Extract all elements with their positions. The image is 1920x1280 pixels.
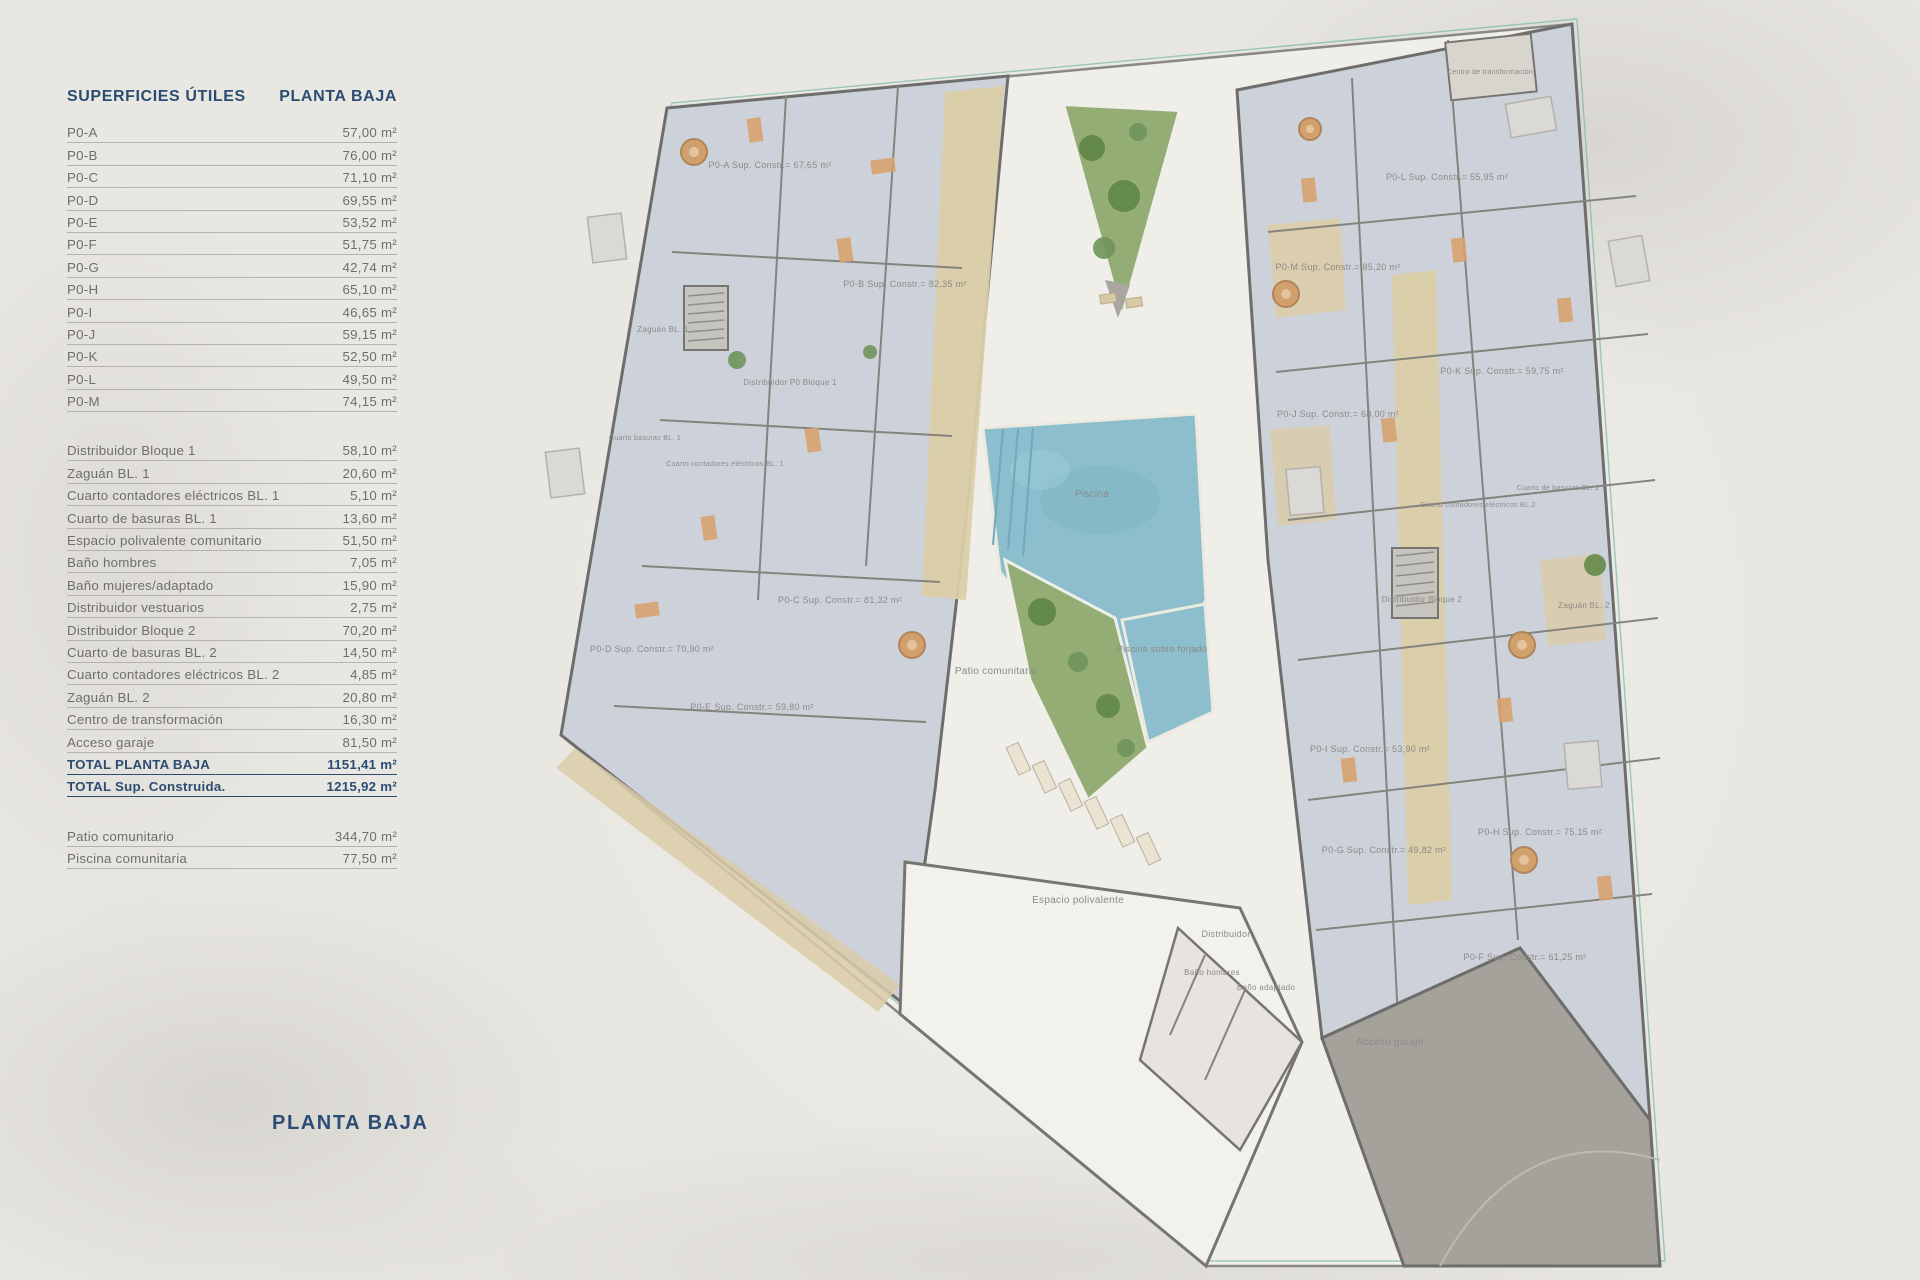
row-label: Espacio polivalente comunitario — [67, 533, 262, 550]
row-label: TOTAL PLANTA BAJA — [67, 757, 210, 774]
plan-label: P0-M Sup. Constr.= 85,20 m² — [1276, 262, 1401, 272]
total-row: TOTAL PLANTA BAJA 1151,41 m² — [67, 753, 397, 775]
table-row: P0-E 53,52 m² — [67, 211, 397, 233]
row-label: Baño hombres — [67, 555, 156, 572]
plan-label: Centro de transformación — [1447, 69, 1533, 76]
plan-label: Patio comunitario — [955, 666, 1037, 677]
row-value: 1215,92 m² — [326, 779, 397, 796]
row-label: Piscina comunitaria — [67, 851, 187, 868]
row-value: 42,74 m² — [343, 260, 397, 277]
row-value: 20,80 m² — [343, 690, 397, 707]
row-value: 65,10 m² — [343, 282, 397, 299]
row-value: 4,85 m² — [350, 667, 397, 684]
table-row: P0-J 59,15 m² — [67, 323, 397, 345]
plan-label: Piscina — [1075, 489, 1109, 500]
table-row: Cuarto de basuras BL. 2 14,50 m² — [67, 641, 397, 663]
plan-label: Baño adaptado — [1237, 983, 1295, 992]
row-label: P0-D — [67, 193, 98, 210]
row-value: 2,75 m² — [350, 600, 397, 617]
row-label: P0-G — [67, 260, 99, 277]
plan-label: Cuarto contadores eléctricos BL. 1 — [666, 461, 784, 468]
row-label: P0-B — [67, 148, 98, 165]
table-row: Zaguán BL. 1 20,60 m² — [67, 461, 397, 483]
row-label: P0-K — [67, 349, 98, 366]
row-label: P0-A — [67, 125, 98, 142]
row-value: 57,00 m² — [343, 125, 397, 142]
row-label: P0-H — [67, 282, 98, 299]
plan-label: P0-D Sup. Constr.= 70,90 m² — [590, 644, 714, 654]
row-value: 76,00 m² — [343, 148, 397, 165]
table-subtitle: PLANTA BAJA — [279, 88, 397, 106]
table-row: Distribuidor Bloque 2 70,20 m² — [67, 618, 397, 640]
row-value: 15,90 m² — [343, 578, 397, 595]
row-label: Baño mujeres/adaptado — [67, 578, 213, 595]
row-value: 7,05 m² — [350, 555, 397, 572]
row-value: 16,30 m² — [343, 712, 397, 729]
row-label: Zaguán BL. 2 — [67, 690, 150, 707]
row-value: 51,75 m² — [343, 237, 397, 254]
row-value: 69,55 m² — [343, 193, 397, 210]
plan-label: Cuarto de basuras BL. 2 — [1517, 485, 1600, 492]
plan-label: Distribuidor — [1201, 929, 1250, 939]
table-row: P0-K 52,50 m² — [67, 345, 397, 367]
row-label: P0-L — [67, 372, 96, 389]
floor-plan-sheet: P0-A Sup. Constr.= 67,65 m²P0-B Sup. Con… — [0, 0, 1920, 1280]
row-label: Cuarto contadores eléctricos BL. 2 — [67, 667, 280, 684]
unit-rows: P0-A 57,00 m² P0-B 76,00 m² P0-C 71,10 m… — [67, 121, 397, 412]
row-value: 49,50 m² — [343, 372, 397, 389]
row-value: 52,50 m² — [343, 349, 397, 366]
row-label: Distribuidor vestuarios — [67, 600, 204, 617]
row-value: 71,10 m² — [343, 170, 397, 187]
row-label: Cuarto de basuras BL. 1 — [67, 511, 217, 528]
row-label: P0-J — [67, 327, 95, 344]
table-row: Patio comunitario 344,70 m² — [67, 824, 397, 846]
row-label: P0-C — [67, 170, 98, 187]
plan-label: Acceso garaje — [1356, 1037, 1423, 1048]
plan-label: P0-E Sup. Constr.= 59,80 m² — [690, 702, 813, 712]
row-label: Distribuidor Bloque 2 — [67, 623, 196, 640]
row-value: 5,10 m² — [350, 488, 397, 505]
table-row: Zaguán BL. 2 20,80 m² — [67, 685, 397, 707]
table-row: P0-D 69,55 m² — [67, 188, 397, 210]
row-label: P0-I — [67, 305, 92, 322]
table-row: Distribuidor Bloque 1 58,10 m² — [67, 439, 397, 461]
row-value: 1151,41 m² — [327, 757, 397, 774]
row-value: 81,50 m² — [343, 735, 397, 752]
row-value: 70,20 m² — [343, 623, 397, 640]
plan-label: Distribuidor Bloque 2 — [1382, 595, 1463, 604]
table-row: Distribuidor vestuarios 2,75 m² — [67, 596, 397, 618]
plan-label: Distribuidor P0 Bloque 1 — [743, 378, 837, 387]
row-label: Zaguán BL. 1 — [67, 466, 150, 483]
total-rows: TOTAL PLANTA BAJA 1151,41 m² TOTAL Sup. … — [67, 753, 397, 798]
table-row: P0-H 65,10 m² — [67, 278, 397, 300]
row-label: Distribuidor Bloque 1 — [67, 443, 196, 460]
plan-label: Espacio polivalente — [1032, 895, 1124, 906]
row-value: 59,15 m² — [343, 327, 397, 344]
row-value: 20,60 m² — [343, 466, 397, 483]
row-value: 74,15 m² — [343, 394, 397, 411]
table-row: Centro de transformación 16,30 m² — [67, 708, 397, 730]
plan-label: P0-C Sup. Constr.= 81,32 m² — [778, 595, 902, 605]
plan-label: P0-G Sup. Constr.= 49,82 m² — [1322, 845, 1446, 855]
row-label: P0-F — [67, 237, 97, 254]
total-row: TOTAL Sup. Construida. 1215,92 m² — [67, 775, 397, 797]
row-label: P0-E — [67, 215, 98, 232]
surface-table: SUPERFICIES ÚTILES PLANTA BAJA P0-A 57,0… — [67, 88, 397, 869]
plan-label: Baño hombres — [1184, 968, 1240, 977]
plan-label: P0-B Sup. Constr.= 82,35 m² — [843, 279, 966, 289]
transformer-room — [1445, 34, 1537, 101]
plan-label: P0-F Sup. Constr.= 61,25 m² — [1464, 952, 1587, 962]
row-label: Acceso garaje — [67, 735, 155, 752]
common-rows: Distribuidor Bloque 1 58,10 m² Zaguán BL… — [67, 439, 397, 752]
table-row: Acceso garaje 81,50 m² — [67, 730, 397, 752]
plan-label: P0-A Sup. Constr.= 67,65 m² — [709, 160, 832, 170]
row-label: Patio comunitario — [67, 829, 174, 846]
row-value: 53,52 m² — [343, 215, 397, 232]
plan-label: P0-L Sup. Constr.= 55,95 m² — [1386, 172, 1508, 182]
table-row: Piscina comunitaria 77,50 m² — [67, 847, 397, 869]
table-row: Cuarto de basuras BL. 1 13,60 m² — [67, 506, 397, 528]
row-value: 77,50 m² — [343, 851, 397, 868]
row-value: 13,60 m² — [343, 511, 397, 528]
row-value: 58,10 m² — [343, 443, 397, 460]
plan-label: Zaguán BL. 1 — [637, 325, 689, 334]
table-row: P0-L 49,50 m² — [67, 367, 397, 389]
row-value: 14,50 m² — [343, 645, 397, 662]
table-row: P0-G 42,74 m² — [67, 255, 397, 277]
plan-label: P0-I Sup. Constr.= 53,90 m² — [1310, 744, 1430, 754]
plan-label: P0-J Sup. Constr.= 68,00 m² — [1277, 409, 1399, 419]
table-row: P0-A 57,00 m² — [67, 121, 397, 143]
plan-label: Zaguán BL. 2 — [1558, 601, 1610, 610]
table-row: Cuarto contadores eléctricos BL. 1 5,10 … — [67, 484, 397, 506]
extra-rows: Patio comunitario 344,70 m² Piscina comu… — [67, 824, 397, 869]
plan-label: Cuarto basuras BL. 1 — [609, 435, 681, 442]
row-value: 46,65 m² — [343, 305, 397, 322]
table-title: SUPERFICIES ÚTILES — [67, 88, 246, 106]
table-row: P0-I 46,65 m² — [67, 300, 397, 322]
plan-label: P0-K Sup. Constr.= 59,75 m² — [1440, 366, 1563, 376]
table-row: P0-C 71,10 m² — [67, 166, 397, 188]
row-value: 51,50 m² — [343, 533, 397, 550]
row-value: 344,70 m² — [335, 829, 397, 846]
table-row: P0-M 74,15 m² — [67, 390, 397, 412]
sheet-title: PLANTA BAJA — [272, 1112, 429, 1135]
table-row: Baño mujeres/adaptado 15,90 m² — [67, 573, 397, 595]
row-label: TOTAL Sup. Construida. — [67, 779, 225, 796]
table-row: Espacio polivalente comunitario 51,50 m² — [67, 529, 397, 551]
table-row: P0-F 51,75 m² — [67, 233, 397, 255]
plan-label: P0-H Sup. Constr.= 75,15 m² — [1478, 827, 1602, 837]
row-label: Cuarto contadores eléctricos BL. 1 — [67, 488, 280, 505]
plan-label: Piscina sobre forjado — [1117, 644, 1207, 654]
row-label: P0-M — [67, 394, 100, 411]
table-row: P0-B 76,00 m² — [67, 143, 397, 165]
table-row: Cuarto contadores eléctricos BL. 2 4,85 … — [67, 663, 397, 685]
plan-label: Cuarto contadores eléctricos BL.2 — [1420, 502, 1535, 509]
table-row: Baño hombres 7,05 m² — [67, 551, 397, 573]
row-label: Cuarto de basuras BL. 2 — [67, 645, 217, 662]
row-label: Centro de transformación — [67, 712, 223, 729]
table-header: SUPERFICIES ÚTILES PLANTA BAJA — [67, 88, 397, 106]
